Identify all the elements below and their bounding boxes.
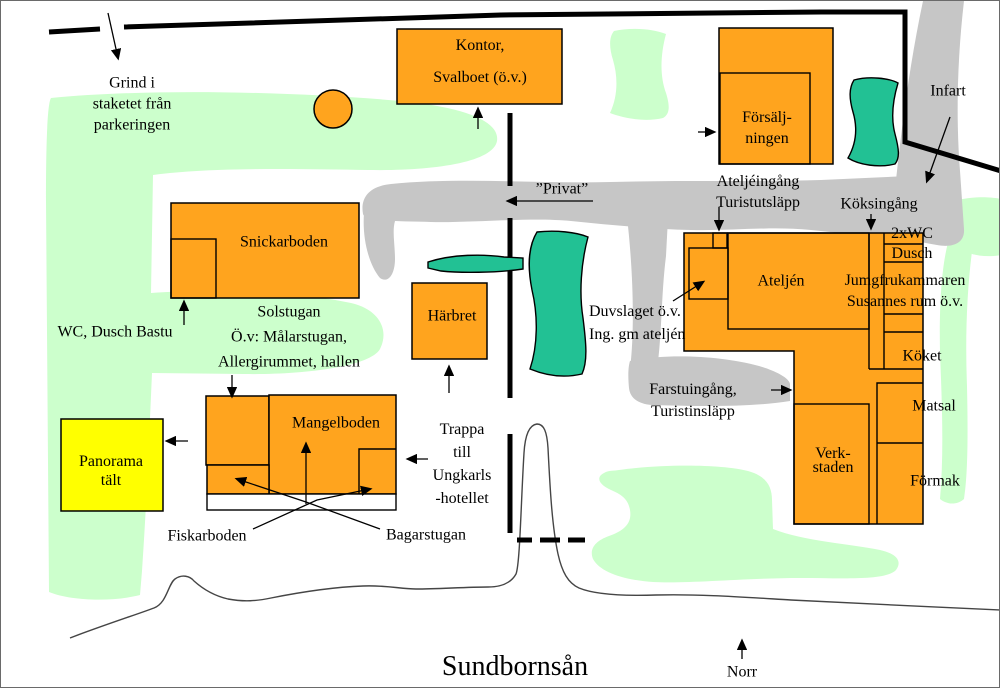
fence-top-dash bbox=[49, 29, 100, 32]
grass-right-band bbox=[940, 238, 973, 504]
building-mangelboden bbox=[269, 395, 396, 494]
road-farstu-band bbox=[628, 356, 790, 406]
grass-top-center bbox=[610, 29, 669, 120]
building-fiskarboden bbox=[206, 396, 269, 465]
building-kontor bbox=[397, 29, 562, 104]
shrub-center-band bbox=[529, 231, 588, 376]
building-harbret bbox=[412, 283, 487, 359]
building-round-tree bbox=[314, 90, 352, 128]
building-forsaljningen bbox=[719, 28, 833, 164]
panorama-tent bbox=[61, 419, 163, 511]
road-north-south bbox=[891, 1, 964, 246]
site-map: Grind i staketet från parkeringen Kontor… bbox=[0, 0, 1000, 688]
building-snickarboden bbox=[171, 203, 359, 298]
arrow-gate bbox=[108, 13, 118, 58]
shrub-right-of-forsaljning bbox=[848, 78, 898, 166]
map-graphics bbox=[1, 1, 1000, 688]
road-atelje-branch bbox=[627, 217, 668, 369]
road-west-hook bbox=[364, 211, 395, 279]
shrub-horizontal-band bbox=[428, 255, 523, 272]
